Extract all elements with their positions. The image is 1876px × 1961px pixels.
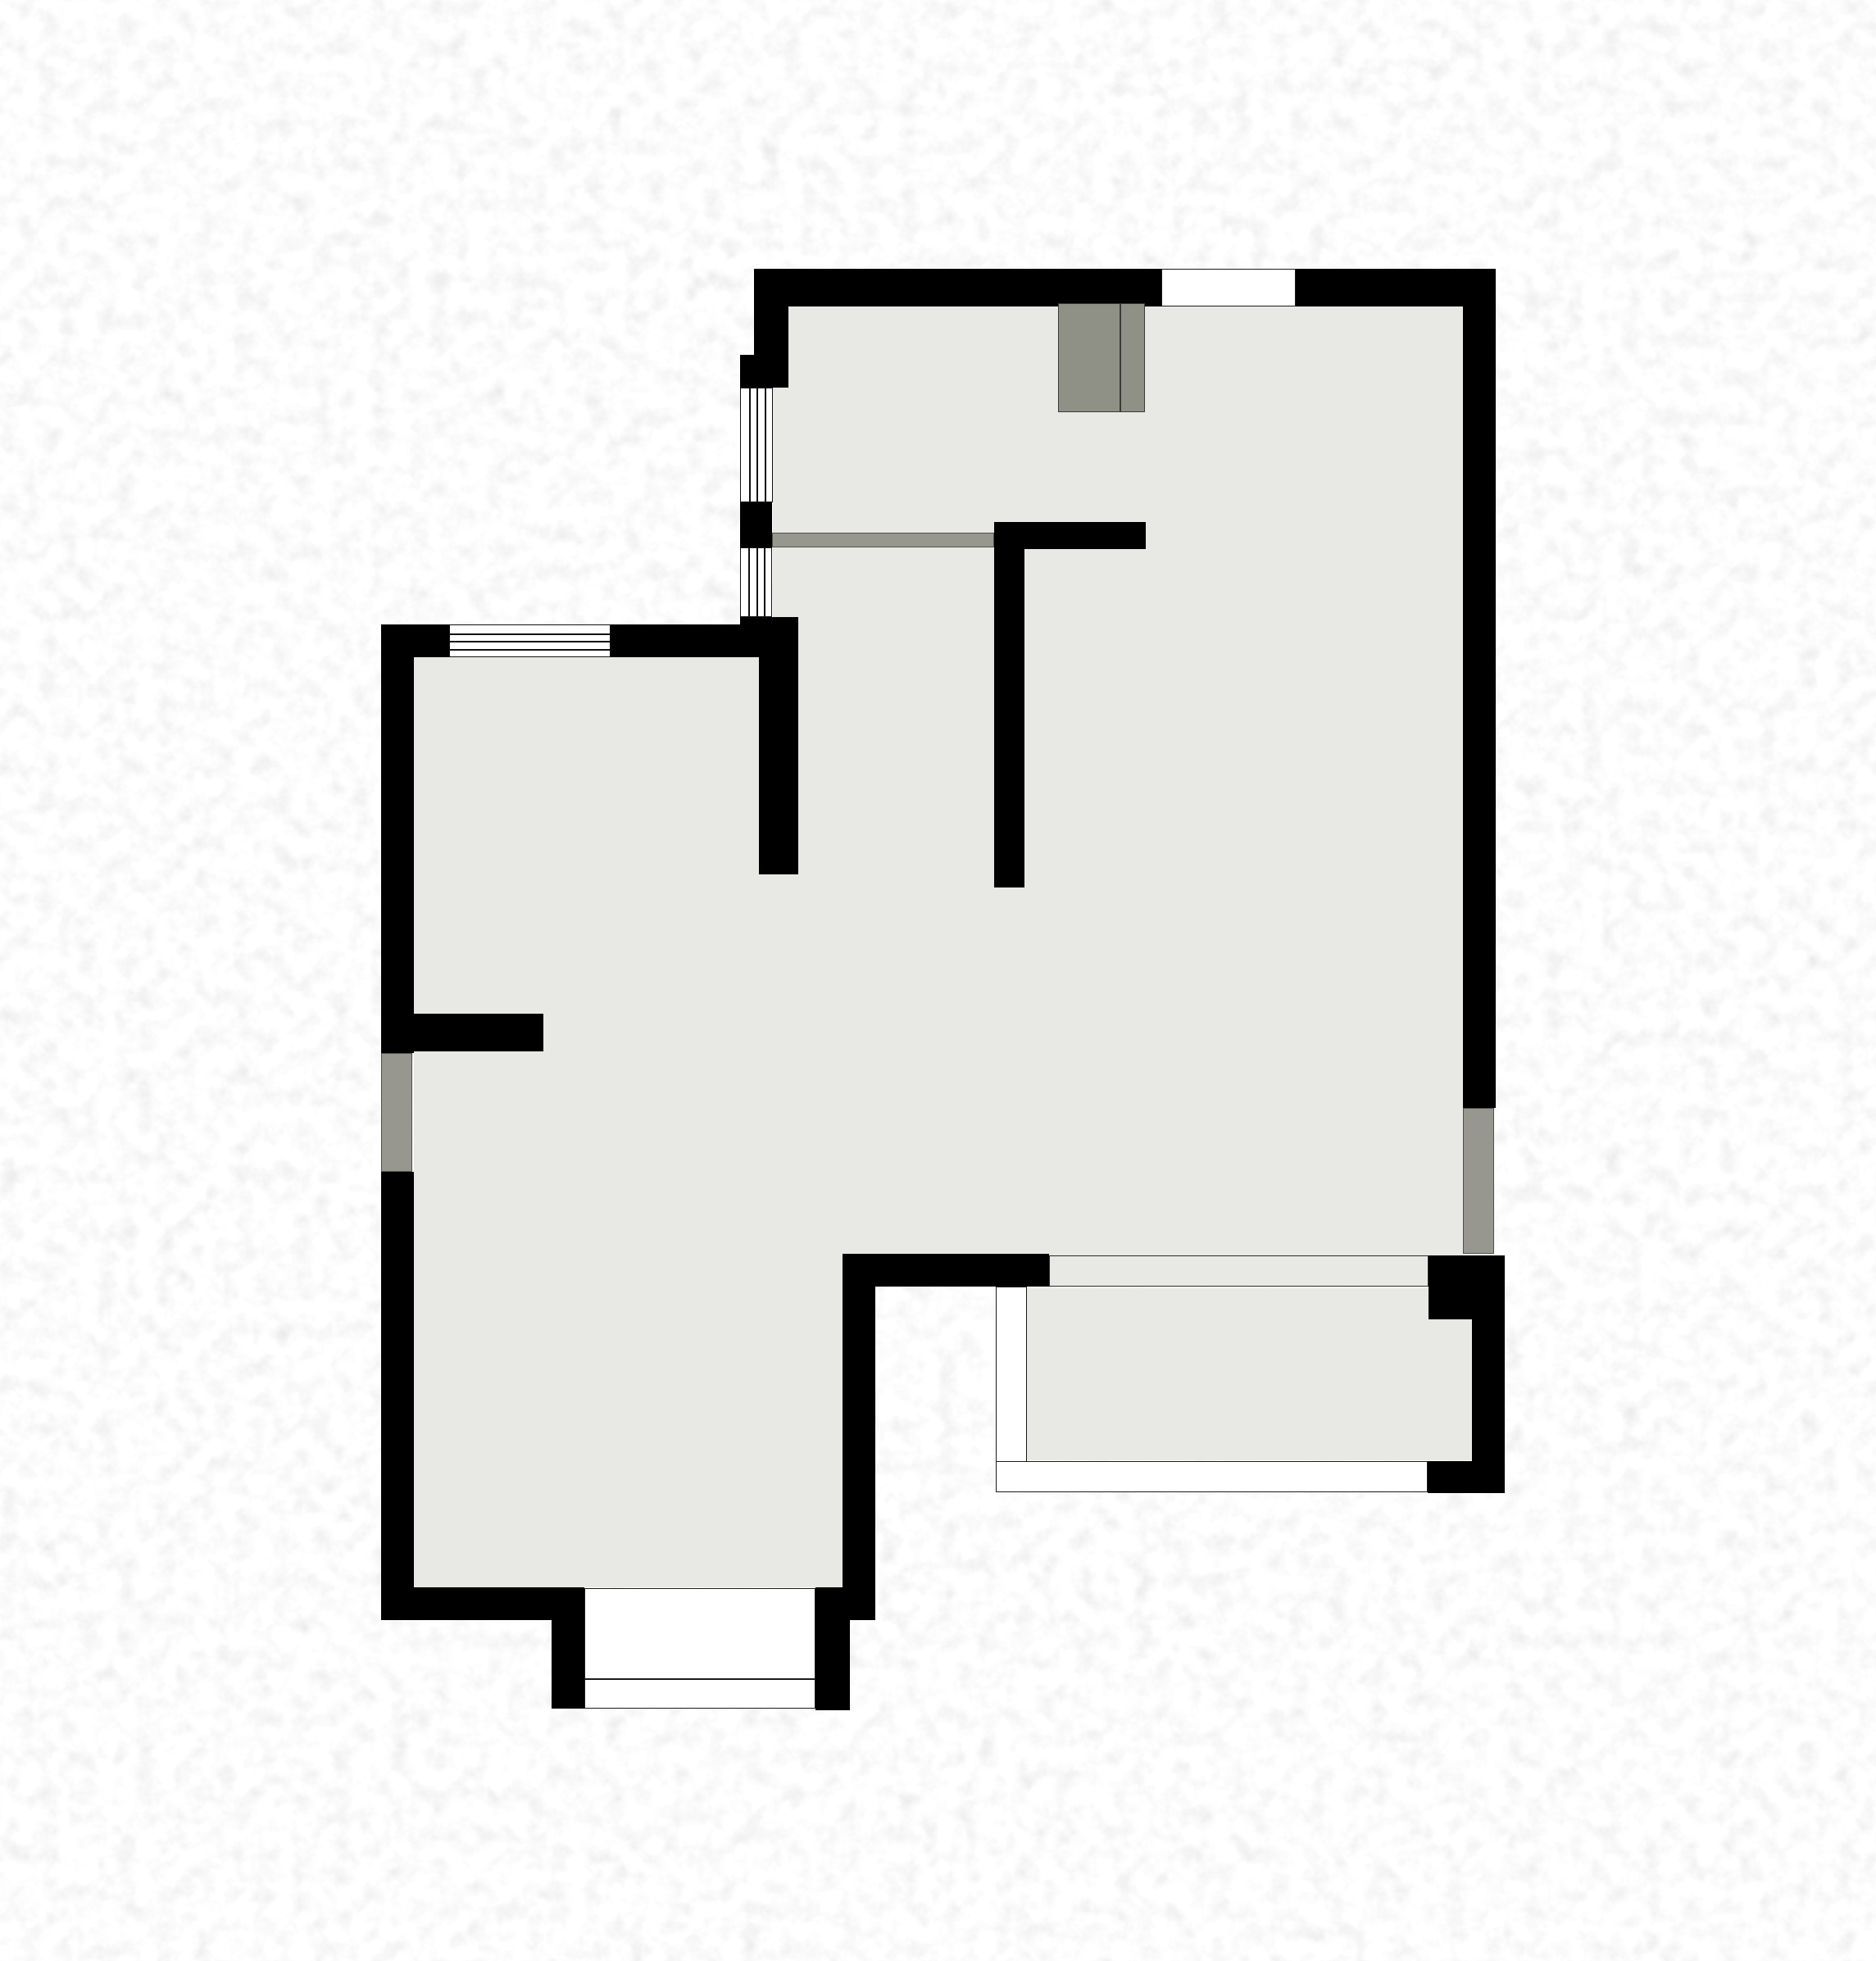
window-kitchen-left-upper-pane-line	[749, 388, 751, 502]
floor-balcony	[1027, 1288, 1472, 1460]
entry-bay	[584, 1588, 815, 1709]
floor-plan	[0, 0, 1876, 1961]
wall-step-vertical	[843, 1254, 875, 1620]
window-kitchen-left-upper-pane-line	[756, 388, 758, 502]
window-living-top-pane-line	[450, 641, 610, 642]
appliance-cabinet-right	[1120, 303, 1145, 412]
kitchen-sliding-track	[772, 533, 994, 547]
wall-upper-left-vertical	[754, 269, 788, 355]
wall-step-horizontal	[843, 1254, 1049, 1287]
window-living-top-pane-line	[450, 649, 610, 651]
balcony-door-band	[1049, 1255, 1429, 1287]
top-wall-window-opening	[1161, 269, 1296, 306]
window-living-top-pane-line	[450, 633, 610, 635]
wall-left-exterior-upper	[381, 624, 414, 1053]
wall-interior-stub	[381, 1014, 543, 1051]
wall-right-exterior	[1463, 269, 1496, 1108]
window-kitchen-left-lower-pane-line	[764, 548, 765, 616]
left-wall-door-opening	[381, 1053, 412, 1172]
wall-left-exterior-lower	[381, 1172, 414, 1620]
floor-main-area	[773, 388, 1463, 1255]
window-kitchen-left-upper-pane-line	[765, 388, 766, 502]
wall-interior-mid-vertical	[759, 617, 798, 874]
window-kitchen-left-lower-pane-line	[748, 548, 750, 616]
window-kitchen-left-lower	[740, 547, 772, 617]
wall-bottom-exterior	[381, 1587, 584, 1620]
wall-balcony-corner-bottom-right	[1428, 1461, 1505, 1493]
wall-kitchen-t-vertical	[994, 522, 1024, 887]
wall-kitchen-window-pier	[740, 502, 772, 547]
appliance-cabinet-left	[1058, 303, 1120, 412]
window-kitchen-left-upper	[740, 388, 773, 502]
wall-entry-bay-left	[552, 1620, 584, 1709]
entry-bay-threshold-line	[585, 1678, 815, 1680]
window-living-top	[449, 624, 611, 657]
wall-top-left-segment	[754, 269, 1161, 306]
window-kitchen-left-lower-pane-line	[756, 548, 758, 616]
wall-balcony-corner-top-right	[1429, 1255, 1505, 1319]
right-wall-door-opening	[1463, 1108, 1494, 1254]
balcony-parapet-bottom	[996, 1461, 1428, 1492]
wall-upper-left-step	[740, 355, 788, 388]
